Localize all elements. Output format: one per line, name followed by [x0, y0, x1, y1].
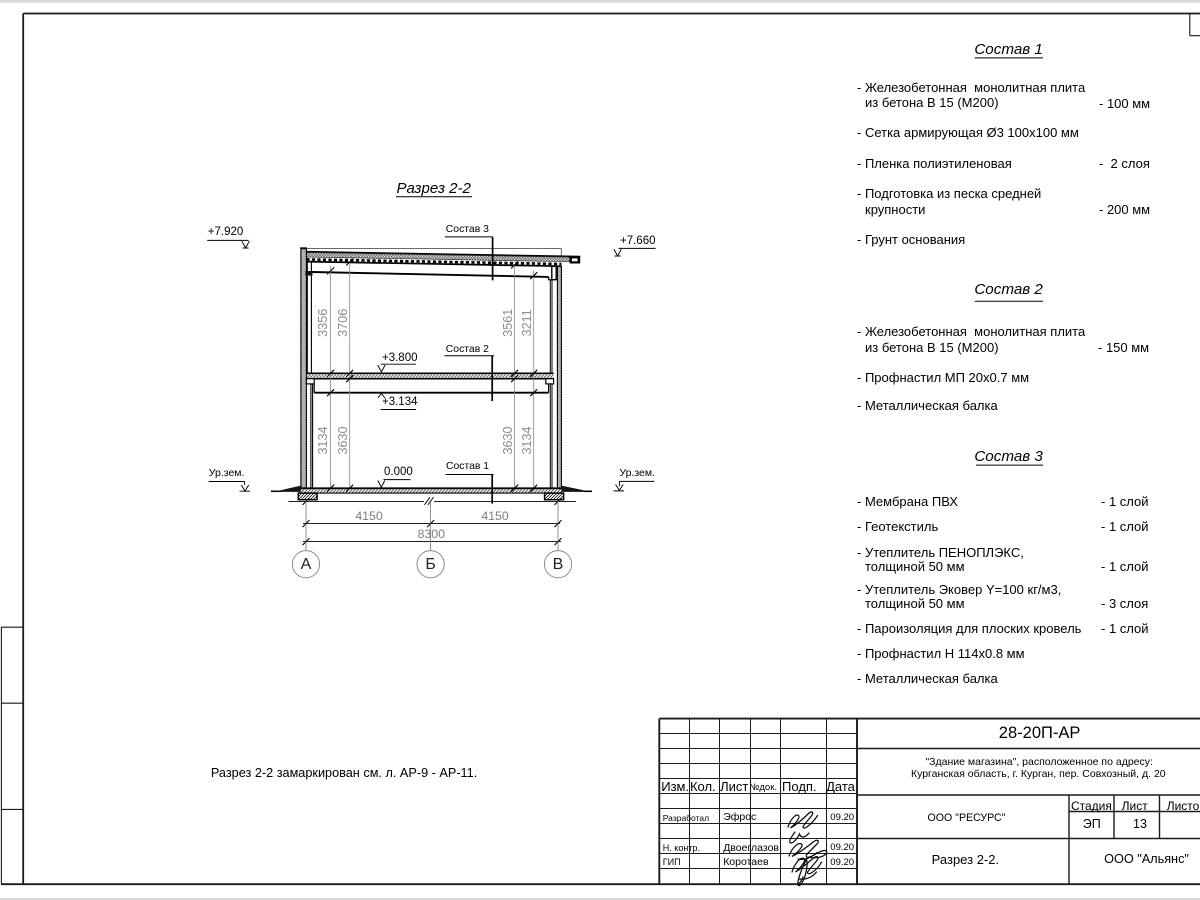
svg-text:3561: 3561	[501, 309, 515, 337]
svg-text:3630: 3630	[501, 426, 515, 454]
svg-text:3134: 3134	[520, 426, 534, 454]
svg-text:3356: 3356	[316, 309, 330, 337]
svg-text:3134: 3134	[316, 426, 330, 454]
svg-text:3630: 3630	[336, 426, 350, 454]
svg-text:3706: 3706	[336, 309, 350, 337]
svg-text:3211: 3211	[520, 309, 534, 336]
